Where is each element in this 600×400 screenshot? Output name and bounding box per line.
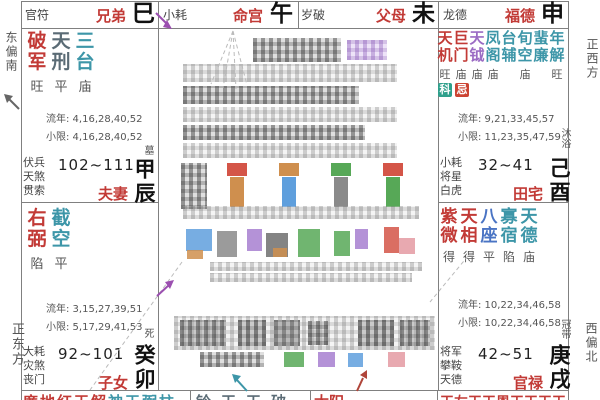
compass-west: 正西方 — [584, 38, 600, 80]
star-name: 天相 — [459, 208, 479, 245]
star-status: 陷 — [503, 248, 515, 265]
clipped-star-row: 太阳 — [314, 392, 374, 400]
life-stage: 冠带 — [557, 319, 572, 339]
life-stage: 墓 — [140, 145, 155, 155]
xiaoxian-ages: 小限: 11,23,35,47,59 — [458, 128, 561, 143]
star-status: 庙 — [523, 248, 535, 265]
decade-age-range: 42~51 — [478, 345, 534, 363]
life-stage: 死 — [140, 328, 155, 338]
star-status: 庙 — [78, 76, 91, 95]
star-name: 旬空 — [517, 30, 533, 63]
xiaoxian-ages: 小限: 4,16,28,40,52 — [46, 128, 143, 143]
shensha-label: 小耗 — [163, 6, 187, 23]
star-name: 廉地红天解 — [23, 393, 108, 400]
blurred-figure — [278, 163, 300, 208]
life-stage: 沐浴 — [557, 128, 572, 148]
palace-label: 田宅 — [513, 183, 543, 204]
star-name: 寡宿 — [499, 208, 519, 245]
branch-char: 申 — [541, 3, 564, 26]
shensha-label: 官符 — [25, 6, 49, 23]
decade-age-range: 92~101 — [58, 345, 124, 363]
direction-arrow-gray — [4, 94, 19, 109]
star-status: 庙 — [472, 66, 483, 82]
shensha-item: 天煞 — [23, 170, 45, 183]
liunian-ages: 流年: 3,15,27,39,51 — [46, 300, 143, 315]
palace-label: 父母 — [376, 5, 406, 26]
star-list-you: 天机旺 巨门庙 天钺庙 凤阁庙 台辅 旬空庙 蜚廉 年解旺 — [437, 30, 565, 82]
shensha-label: 岁破 — [301, 6, 325, 23]
blurred-text-row — [183, 64, 397, 82]
blurred-figure — [382, 163, 404, 208]
star-name: 天刑 — [49, 31, 73, 73]
shensha-item: 天德 — [440, 373, 462, 386]
liunian-ages: 流年: 9,21,33,45,57 — [458, 110, 555, 125]
blurred-color-block — [217, 231, 237, 257]
shensha-label: 龙德 — [443, 6, 467, 23]
shensha-item: 丧门 — [23, 373, 45, 386]
shensha-item: 贯索 — [23, 184, 45, 197]
blurred-text-row — [210, 273, 412, 282]
liunian-ages: 流年: 10,22,34,46,58 — [458, 296, 561, 311]
blurred-table-chunk — [274, 320, 300, 346]
star-status: 平 — [54, 76, 67, 95]
blurred-text-row — [183, 125, 365, 140]
clipped-star-row: 廉地红天解神天弼柱 — [23, 392, 188, 400]
blurred-color-block — [388, 352, 405, 367]
star-status: 平 — [54, 253, 67, 272]
shensha-item: 攀鞍 — [440, 359, 462, 372]
grid-line — [437, 390, 438, 400]
grid-line — [298, 1, 299, 28]
xiaoxian-ages: 小限: 10,22,34,46,58 — [458, 314, 561, 329]
badge-ji: 忌 — [455, 83, 469, 97]
palace-label: 兄弟 — [96, 5, 126, 26]
star-status: 得 — [463, 248, 475, 265]
blurred-figure — [226, 163, 248, 208]
star-status: 平 — [483, 248, 495, 265]
badge-ke: 科 — [438, 83, 452, 97]
shensha-item: 小耗 — [440, 156, 462, 169]
shensha-item: 白虎 — [440, 184, 462, 197]
blurred-text-row — [183, 206, 419, 219]
shensha-item: 大耗 — [23, 345, 45, 358]
grid-line — [21, 1, 568, 2]
palace-label: 子女 — [98, 372, 128, 393]
palace-label: 命宫 — [233, 5, 263, 26]
ziwei-chart: 东偏南 正东方 正西方 西偏北 官符 兄弟 巳 小耗 命宫 午 岁破 父母 未 … — [0, 0, 600, 400]
decade-age-range: 32~41 — [478, 156, 534, 174]
star-list-chen: 破军旺 天刑平 三台庙 — [25, 31, 97, 95]
shensha-item: 将星 — [440, 170, 462, 183]
blurred-color-block — [247, 229, 262, 251]
shensha-item: 灾煞 — [23, 359, 45, 372]
stem-branch: 癸卯 — [133, 344, 154, 392]
star-name: 天左天天恩天天天天 — [440, 395, 566, 400]
star-list-mao: 右弼陷 截空平 — [25, 208, 73, 272]
liunian-ages: 流年: 4,16,28,40,52 — [46, 110, 143, 125]
arrow-purple-left — [157, 280, 174, 296]
blurred-column — [181, 163, 207, 209]
compass-northwest: 西偏北 — [583, 322, 600, 364]
star-status: 庙 — [488, 66, 499, 82]
blurred-color-block — [186, 229, 212, 251]
xiaoxian-ages: 小限: 5,17,29,41,53 — [46, 318, 143, 333]
star-name: 蜚廉 — [533, 30, 549, 63]
star-name: 台辅 — [501, 30, 517, 63]
blurred-text-row — [183, 107, 397, 122]
blurred-table-chunk — [180, 320, 226, 346]
stem-branch: 己酉 — [548, 157, 569, 205]
blurred-color-block — [298, 229, 320, 257]
blurred-text-row — [200, 352, 264, 367]
blurred-color-block — [273, 248, 287, 257]
star-status: 得 — [443, 248, 455, 265]
star-name: 年解 — [549, 30, 565, 63]
star-name: 截空 — [49, 208, 73, 250]
branch-char: 午 — [270, 3, 293, 26]
arrow-red-bottom — [357, 370, 367, 391]
star-list-xu: 紫微得 天相得 八座平 寡宿陷 天德庙 — [439, 208, 539, 265]
star-name: 八座 — [479, 208, 499, 245]
blurred-color-block — [187, 250, 203, 259]
clipped-star-row: 天左天天恩天天天天 — [440, 392, 566, 400]
blurred-figure — [330, 163, 352, 208]
star-name: 右弼 — [25, 208, 49, 250]
blurred-text-row — [183, 143, 397, 158]
blurred-table-chunk — [400, 320, 430, 346]
branch-char: 巳 — [132, 3, 155, 26]
star-name: 破军 — [25, 31, 49, 73]
star-name: 紫微 — [439, 208, 459, 245]
star-status: 陷 — [30, 253, 43, 272]
star-name: 巨门 — [453, 30, 469, 63]
star-name: 铃天天破华 — [196, 393, 296, 400]
star-name: 三台 — [73, 31, 97, 73]
grid-line — [158, 1, 159, 390]
clipped-star-row: 铃天天破华 — [196, 392, 308, 400]
blurred-color-block — [348, 353, 363, 367]
branch-char: 未 — [412, 3, 435, 26]
stem-branch: 庚戌 — [548, 344, 569, 392]
shensha-item: 伏兵 — [23, 156, 45, 169]
star-name: 太阳 — [314, 393, 344, 400]
star-status: 庙 — [520, 66, 531, 82]
blurred-color-block — [334, 231, 350, 256]
compass-southeast: 东偏南 — [3, 31, 20, 73]
blurred-color-block — [318, 352, 335, 367]
blurred-text-row — [210, 262, 422, 271]
blurred-table-chunk — [358, 320, 394, 346]
palace-label: 官禄 — [513, 372, 543, 393]
star-name: 天机 — [437, 30, 453, 63]
blurred-title — [253, 38, 341, 62]
blurred-color-block — [399, 238, 415, 254]
grid-line — [310, 390, 311, 400]
palace-label: 夫妻 — [98, 183, 128, 204]
star-status: 旺 — [30, 76, 43, 95]
grid-line — [190, 390, 191, 400]
blurred-purple-block — [347, 40, 387, 60]
decade-age-range: 102~111 — [58, 156, 135, 174]
palace-label: 福德 — [505, 5, 535, 26]
sihua-badges: 科忌 — [438, 78, 472, 97]
stem-branch: 甲辰 — [133, 158, 154, 206]
shensha-item: 将军 — [440, 345, 462, 358]
star-name: 神天弼柱 — [108, 393, 176, 400]
blurred-table-chunk — [308, 321, 328, 345]
star-status: 旺 — [552, 66, 563, 82]
arrow-teal-bottom — [232, 374, 247, 391]
star-name: 天德 — [519, 208, 539, 245]
star-name: 凤阁 — [485, 30, 501, 63]
star-name: 天钺 — [469, 30, 485, 63]
blurred-table-chunk — [238, 320, 266, 346]
blurred-color-block — [384, 227, 399, 253]
blurred-color-block — [355, 229, 368, 249]
blurred-text-row — [183, 86, 359, 104]
blurred-color-block — [284, 352, 304, 367]
